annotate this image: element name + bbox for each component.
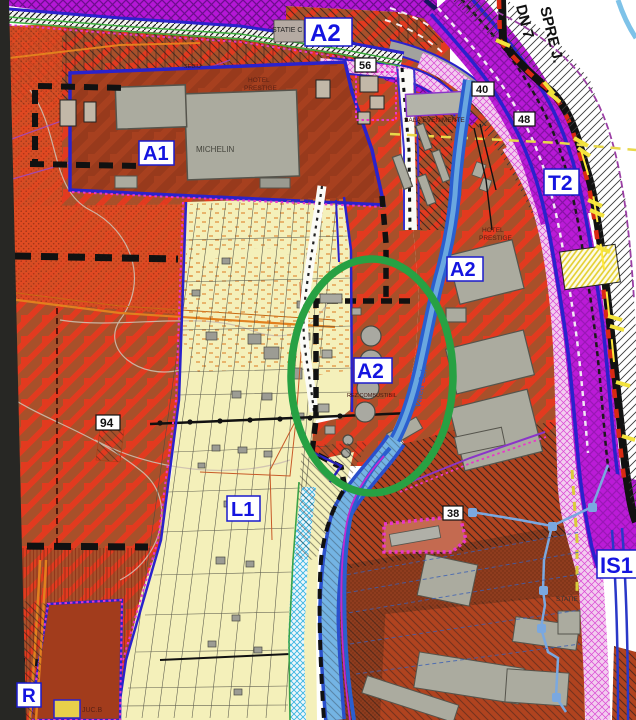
svg-text:T2: T2 [548, 172, 573, 195]
svg-text:48: 48 [518, 114, 530, 126]
svg-text:PRESTIGE: PRESTIGE [479, 235, 513, 242]
svg-text:JUC.B: JUC.B [82, 707, 103, 714]
svg-text:A2: A2 [310, 20, 341, 47]
svg-text:HOTEL: HOTEL [482, 227, 504, 234]
svg-text:STATIE C: STATIE C [272, 27, 302, 34]
svg-text:A2: A2 [450, 259, 476, 281]
svg-text:MICHELIN: MICHELIN [196, 145, 234, 154]
svg-text:L1: L1 [231, 499, 254, 521]
svg-text:40: 40 [476, 84, 488, 96]
svg-text:PRESTIGE: PRESTIGE [244, 85, 278, 92]
svg-text:A1: A1 [143, 143, 169, 165]
svg-text:R: R [22, 686, 36, 707]
svg-text:38: 38 [447, 508, 459, 520]
svg-text:SEDIU: SEDIU [184, 64, 201, 70]
svg-text:IS1: IS1 [600, 553, 633, 578]
svg-text:REZ.COMBUSTIBIL: REZ.COMBUSTIBIL [347, 393, 397, 399]
svg-text:HOTEL: HOTEL [248, 77, 270, 84]
svg-text:A2: A2 [357, 360, 384, 383]
svg-text:56: 56 [359, 60, 371, 72]
svg-text:SALĂ EVENIMENTE: SALĂ EVENIMENTE [404, 115, 465, 124]
svg-text:94: 94 [100, 416, 114, 430]
svg-text:STATIE: STATIE [556, 596, 578, 603]
